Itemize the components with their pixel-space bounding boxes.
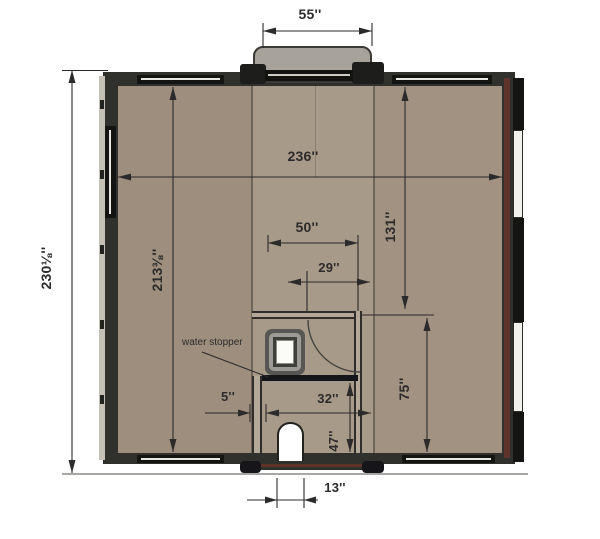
dim-overall-depth: 230⅛'' <box>38 233 54 303</box>
dim-pet-door-width: 13'' <box>310 480 360 496</box>
dim-bath-inner-width: 32'' <box>303 391 353 407</box>
dimension-lines <box>62 23 528 508</box>
door-swing-arc <box>308 320 360 372</box>
dim-threshold-offset: 5'' <box>208 389 248 405</box>
water-stopper-label: water stopper <box>182 337 243 348</box>
dim-bath-outer-width: 50'' <box>277 219 337 235</box>
dim-front-to-bath: 131'' <box>382 197 398 257</box>
floor-plan-canvas: 55'' 230⅛'' 213⅜'' 236'' 50'' 29'' 131''… <box>0 0 600 539</box>
dim-interior-depth: 213⅜'' <box>149 235 165 305</box>
dim-bath-to-front: 75'' <box>396 359 412 419</box>
water-stopper-leader <box>202 352 268 377</box>
dimension-lines-layer <box>0 0 600 539</box>
dim-porch-width: 55'' <box>280 6 340 22</box>
dim-wet-area-depth: 47'' <box>326 416 342 466</box>
dim-bath-door-offset: 29'' <box>304 260 354 276</box>
dim-overall-width: 236'' <box>273 148 333 164</box>
dimension-arrowheads <box>69 28 503 504</box>
